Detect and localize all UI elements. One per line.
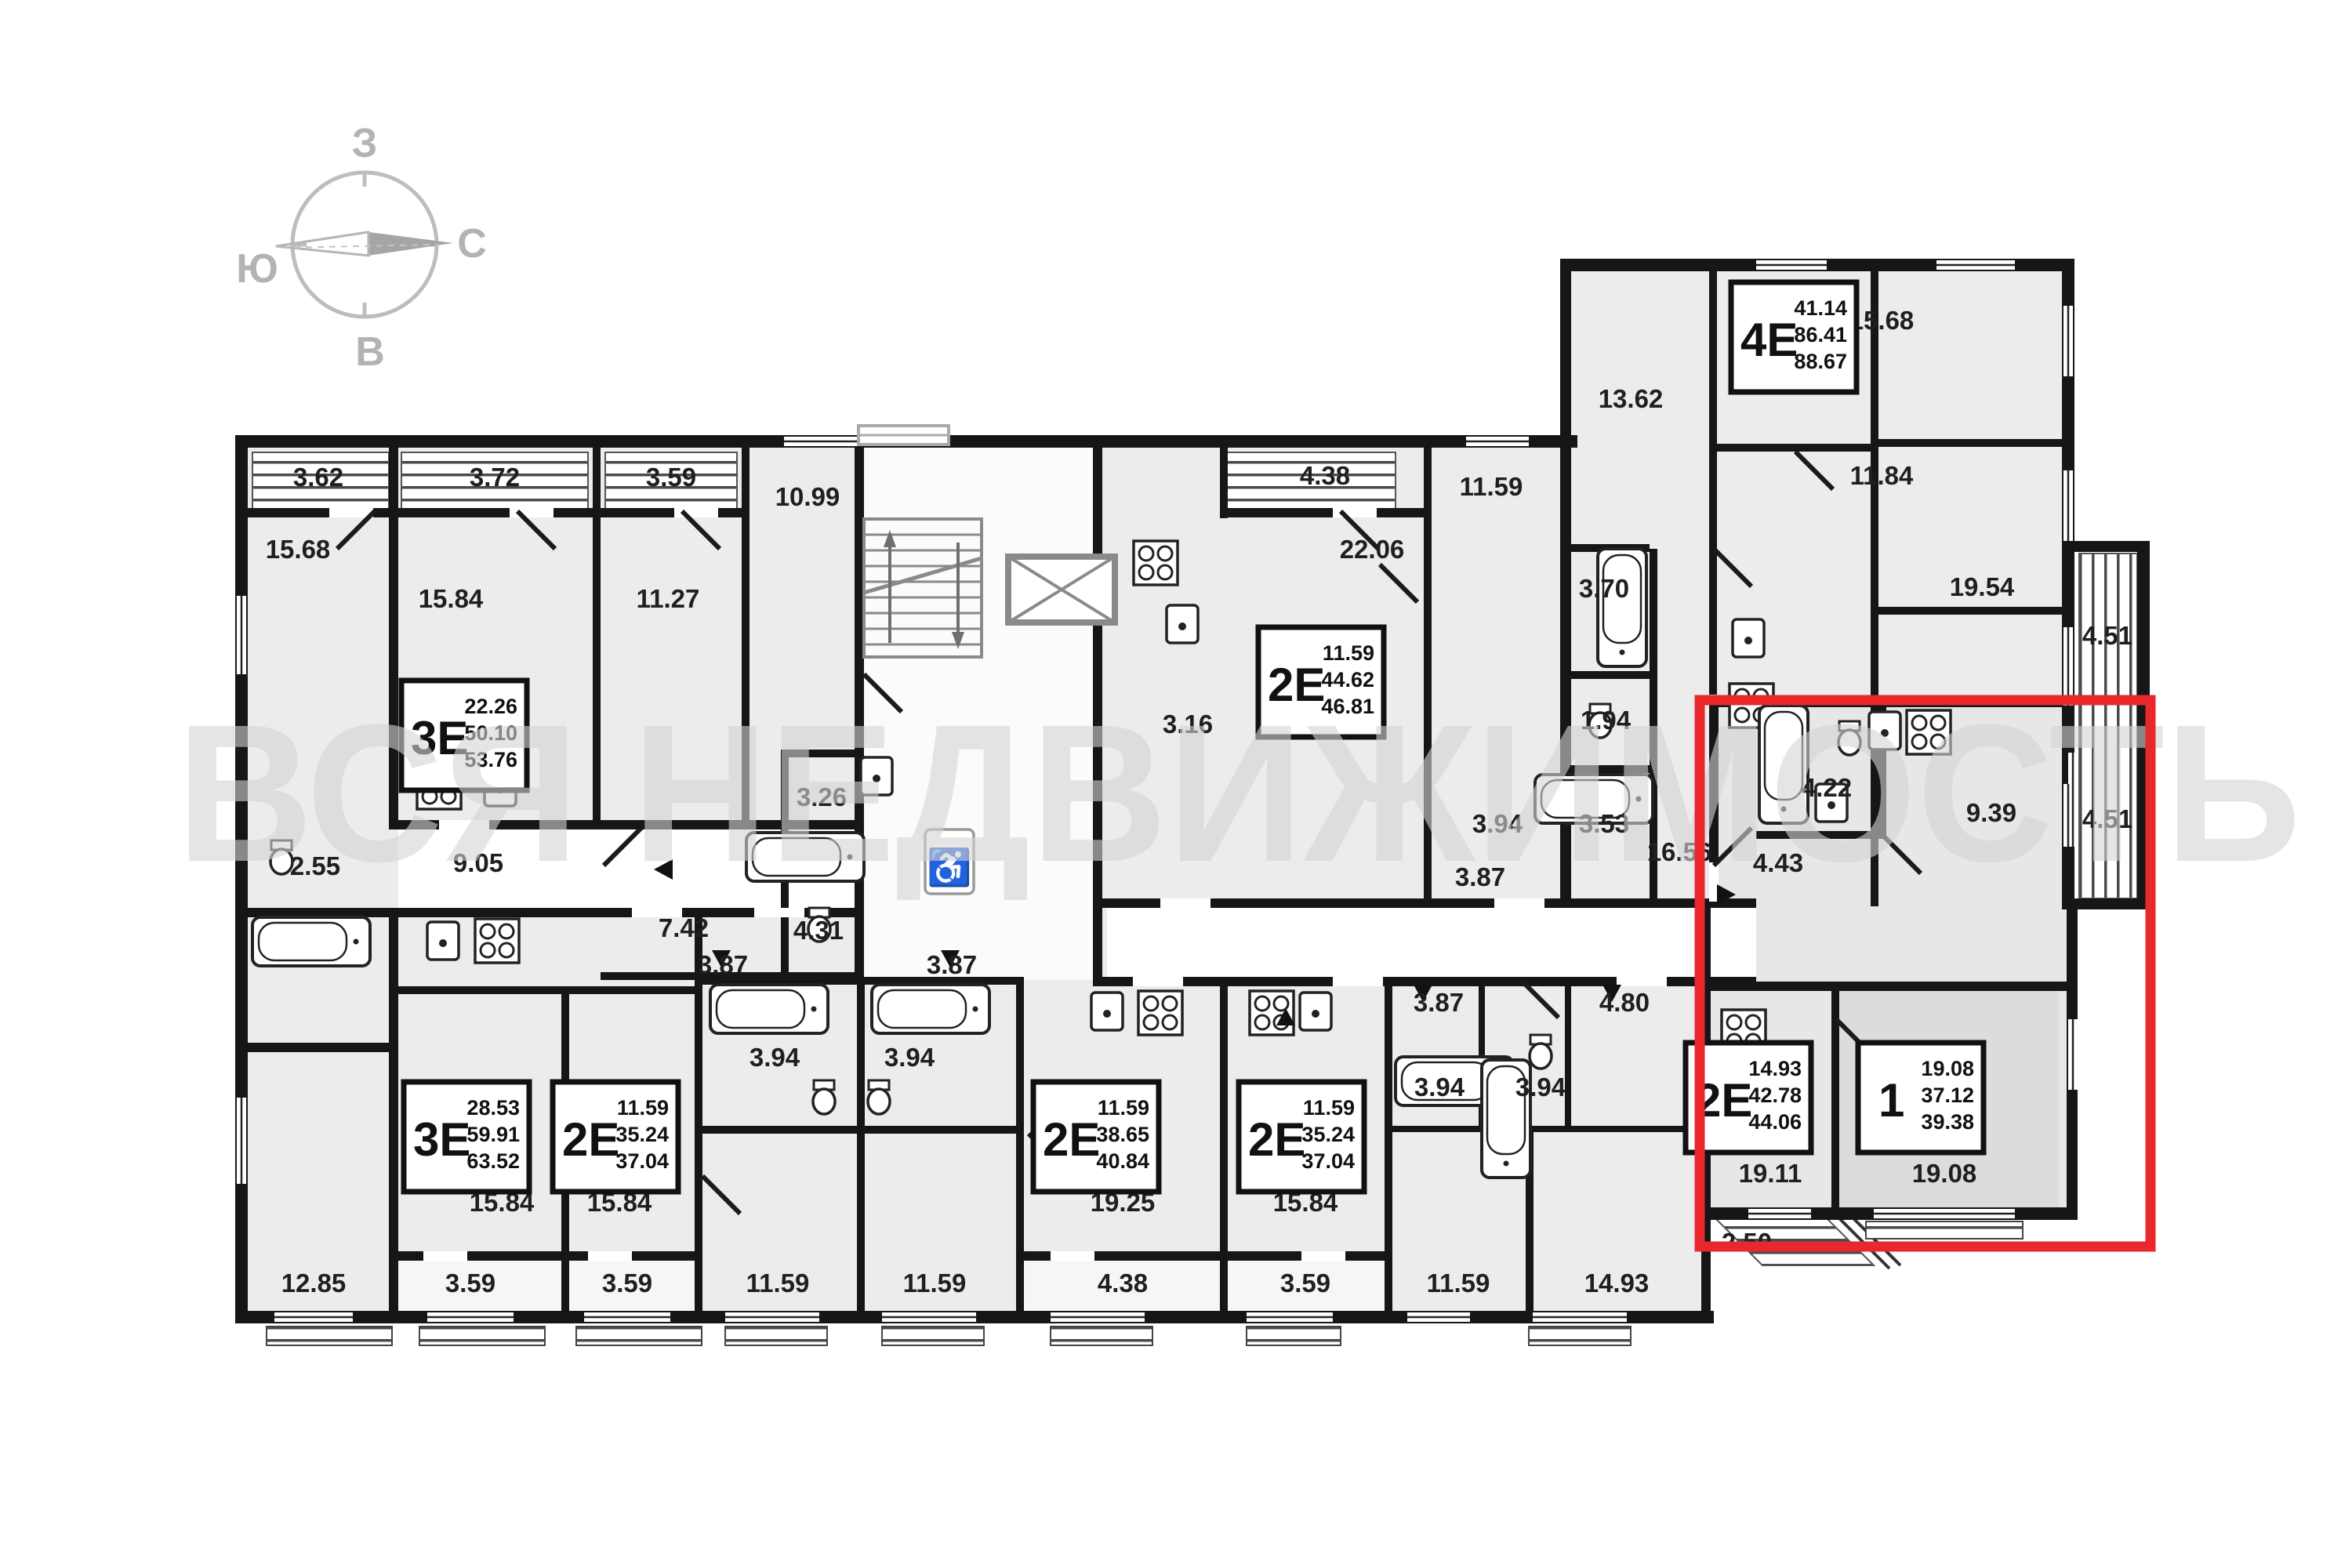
room-area-label: 13.62 xyxy=(1599,384,1664,413)
apartment-label-2e-b2: 2E 11.59 38.65 40.84 xyxy=(1033,1082,1159,1192)
room-area-label: 3.87 xyxy=(698,950,748,979)
svg-text:28.53: 28.53 xyxy=(466,1096,520,1120)
toilet-icon xyxy=(868,1080,890,1114)
room-area-label: 3.94 xyxy=(1515,1073,1566,1102)
room-area-label: 19.54 xyxy=(1950,572,2015,601)
svg-text:11.59: 11.59 xyxy=(1098,1096,1149,1120)
svg-text:37.12: 37.12 xyxy=(1921,1083,1974,1107)
svg-text:19.08: 19.08 xyxy=(1921,1057,1974,1080)
room-area-label: 3.94 xyxy=(750,1043,800,1072)
svg-text:1: 1 xyxy=(1878,1074,1904,1127)
stove-icon xyxy=(1134,541,1178,585)
bathtub-icon xyxy=(1598,549,1646,666)
room-area-label: 10.99 xyxy=(775,482,840,511)
sink-icon xyxy=(1167,605,1198,643)
toilet-icon xyxy=(1530,1035,1552,1069)
room-area-label: 11.84 xyxy=(1850,461,1914,490)
compass-label-east: В xyxy=(355,329,385,375)
svg-text:2E: 2E xyxy=(1043,1113,1100,1166)
stove-icon xyxy=(1138,991,1182,1035)
svg-text:35.24: 35.24 xyxy=(615,1123,669,1146)
room-area-label: 3.59 xyxy=(445,1269,495,1298)
compass-label-south: Ю xyxy=(236,246,278,292)
sink-icon xyxy=(427,922,459,960)
compass-label-north: С xyxy=(457,221,487,267)
sink-icon xyxy=(1733,619,1764,657)
bathtub-icon xyxy=(872,985,989,1033)
apartment-label-1: 1 19.08 37.12 39.38 xyxy=(1858,1043,1984,1152)
svg-text:59.91: 59.91 xyxy=(466,1123,520,1146)
svg-text:88.67: 88.67 xyxy=(1794,350,1847,373)
compass-label-west: З xyxy=(352,121,378,166)
apartment-label-2e-b1: 2E 11.59 35.24 37.04 xyxy=(553,1082,678,1192)
floor-plan-page: ♿ xyxy=(0,0,2352,1568)
svg-text:86.41: 86.41 xyxy=(1794,323,1847,347)
sink-icon xyxy=(1300,993,1331,1030)
floor-plan-svg: ♿ xyxy=(0,0,2352,1568)
room-area-label: 12.85 xyxy=(281,1269,347,1298)
room-area-label: 19.08 xyxy=(1912,1159,1977,1188)
room-area-label: 4.38 xyxy=(1098,1269,1148,1298)
room-area-label: 4.38 xyxy=(1300,461,1350,490)
svg-text:44.06: 44.06 xyxy=(1748,1110,1802,1134)
bathtub-icon xyxy=(710,985,828,1033)
svg-text:37.04: 37.04 xyxy=(1301,1149,1355,1173)
svg-text:11.59: 11.59 xyxy=(617,1096,669,1120)
apartment-label-2e-b3: 2E 11.59 35.24 37.04 xyxy=(1239,1082,1364,1192)
room-area-label: 15.84 xyxy=(419,584,484,613)
svg-text:38.65: 38.65 xyxy=(1096,1123,1149,1146)
room-area-label: 3.87 xyxy=(1414,988,1464,1017)
room-area-label: 7.42 xyxy=(659,913,709,942)
apartment-label-3e-bottom: 3E 28.53 59.91 63.52 xyxy=(404,1082,529,1192)
room-area-label: 3.70 xyxy=(1579,574,1629,603)
room-area-label: 11.27 xyxy=(637,584,700,613)
room-area-label: 11.59 xyxy=(746,1269,810,1298)
elevator xyxy=(1008,557,1115,622)
svg-text:11.59: 11.59 xyxy=(1303,1096,1355,1120)
room-area-label: 4.51 xyxy=(2082,621,2132,650)
svg-text:14.93: 14.93 xyxy=(1748,1057,1802,1080)
room-area-label: 22.06 xyxy=(1340,535,1405,564)
watermark-text: ВСЯ НЕДВИЖИМОСТЬ xyxy=(176,684,2301,902)
room-area-label: 15.68 xyxy=(266,535,331,564)
room-area-label: 3.94 xyxy=(884,1043,935,1072)
svg-text:37.04: 37.04 xyxy=(615,1149,669,1173)
room-area-label: 3.59 xyxy=(1280,1269,1330,1298)
entry-canopy xyxy=(858,426,949,445)
svg-text:4E: 4E xyxy=(1740,314,1798,366)
room-area-label: 3.59 xyxy=(646,463,696,492)
svg-text:40.84: 40.84 xyxy=(1096,1149,1149,1173)
svg-text:35.24: 35.24 xyxy=(1301,1123,1355,1146)
room-area-label: 3.59 xyxy=(602,1269,652,1298)
room-area-label: 3.72 xyxy=(470,463,520,492)
room-area-label: 11.59 xyxy=(1460,472,1523,501)
room-area-label: 3.87 xyxy=(927,950,977,979)
sink-icon xyxy=(1091,993,1123,1030)
svg-text:63.52: 63.52 xyxy=(466,1149,520,1173)
svg-text:41.14: 41.14 xyxy=(1794,296,1847,320)
room-area-label: 4.31 xyxy=(793,916,844,945)
svg-text:39.38: 39.38 xyxy=(1921,1110,1974,1134)
toilet-icon xyxy=(813,1080,835,1114)
svg-text:2E: 2E xyxy=(562,1113,619,1166)
svg-text:11.59: 11.59 xyxy=(1323,641,1374,665)
svg-text:2E: 2E xyxy=(1248,1113,1305,1166)
stove-icon xyxy=(475,919,519,963)
room-area-label: 19.11 xyxy=(1739,1159,1802,1188)
svg-text:3E: 3E xyxy=(413,1113,470,1166)
apartment-label-4e: 4E 41.14 86.41 88.67 xyxy=(1731,282,1857,392)
svg-text:42.78: 42.78 xyxy=(1748,1083,1802,1107)
compass-needle xyxy=(368,232,453,256)
room-area-label: 3.62 xyxy=(293,463,343,492)
bathtub-icon xyxy=(252,917,370,966)
room-area-label: 14.93 xyxy=(1584,1269,1650,1298)
room-area-label: 3.94 xyxy=(1414,1073,1465,1102)
compass: З С В Ю xyxy=(236,121,487,375)
room-area-label: 11.59 xyxy=(1427,1269,1490,1298)
room-area-label: 4.80 xyxy=(1599,988,1650,1017)
room-area-label: 11.59 xyxy=(903,1269,967,1298)
